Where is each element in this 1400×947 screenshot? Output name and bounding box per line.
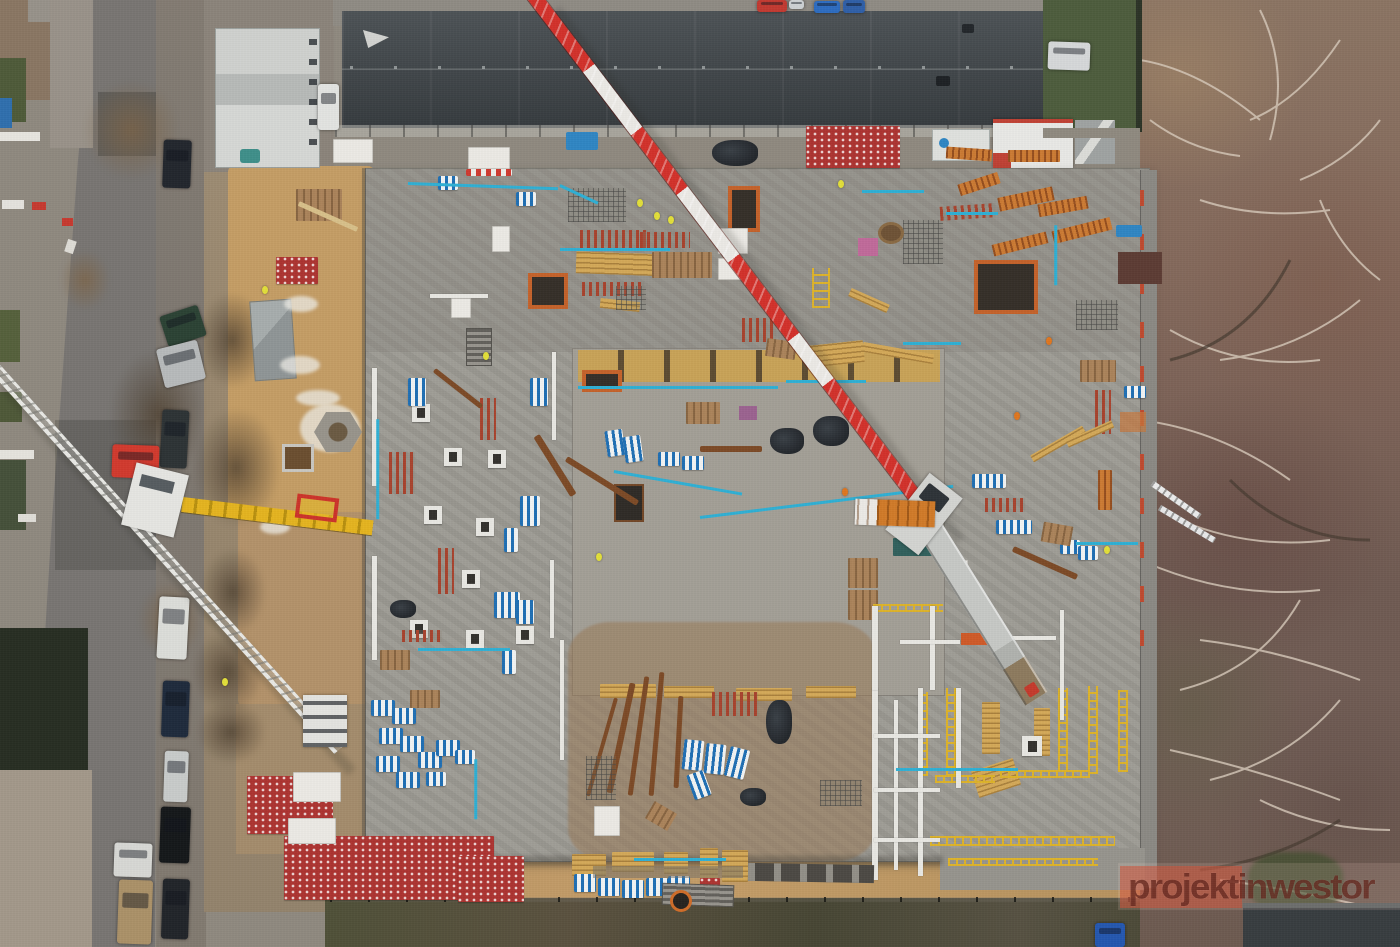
rebar-mesh	[616, 286, 646, 310]
concrete-block	[424, 506, 442, 524]
insulation-pack	[504, 528, 518, 552]
parked-car-navy	[161, 681, 190, 738]
brick-pack	[806, 126, 900, 168]
insulation-pack	[972, 474, 1006, 488]
scaffold-frame	[1088, 686, 1098, 774]
insulation-pack-white	[451, 298, 471, 318]
ground-patch	[1043, 128, 1140, 138]
insulation-pack	[396, 772, 420, 788]
concrete-block	[462, 570, 480, 588]
formwork-clamps	[1140, 176, 1144, 646]
concrete-mixer	[670, 890, 692, 912]
rebar-mesh	[1076, 300, 1118, 330]
car-blue	[1095, 923, 1125, 947]
ground-patch	[1120, 412, 1146, 432]
worker-hivis	[838, 180, 844, 188]
ground-patch	[858, 238, 878, 256]
ground-patch	[0, 770, 92, 947]
tree-branches-texture	[1140, 0, 1400, 947]
insulation-pack-white	[468, 147, 510, 169]
tarp-pile	[770, 428, 804, 454]
wall-segment	[918, 688, 923, 876]
insulation-pack	[455, 750, 475, 764]
worker-hivis	[483, 352, 489, 360]
brick-pack	[458, 856, 524, 902]
insulation-pack	[516, 192, 536, 206]
bare-trees-area	[1140, 0, 1400, 947]
wall-segment	[894, 700, 898, 870]
insulation-pack	[682, 456, 704, 470]
insulation-pack	[681, 739, 704, 771]
service-pipe-line	[418, 648, 510, 651]
rebar-rack	[985, 498, 1025, 512]
wall-segment	[874, 788, 940, 792]
slab-extension	[940, 848, 1145, 890]
rebar-rack	[389, 452, 415, 494]
insulation-pack	[426, 772, 446, 786]
parked-car-dark	[161, 879, 190, 940]
scaffold-frame	[935, 775, 995, 783]
ground-patch	[0, 450, 34, 459]
insulation-pack-white	[293, 772, 341, 802]
parked-car-red	[757, 0, 787, 12]
rebar-bundle	[700, 446, 762, 452]
wall-segment	[874, 838, 940, 842]
wood-pallet	[652, 252, 712, 278]
service-pipe-line	[896, 768, 1018, 771]
pickup-truck	[1048, 41, 1091, 70]
concrete-block	[466, 630, 484, 648]
service-pipe-line	[475, 759, 478, 819]
insulation-pack	[530, 378, 548, 406]
parked-car-black	[159, 806, 191, 863]
ground-patch	[0, 628, 88, 770]
insulation-pack	[392, 708, 416, 724]
wall-segment	[552, 352, 556, 440]
concrete-block	[444, 448, 462, 466]
ground-patch	[0, 310, 20, 362]
worker-hivis	[1104, 546, 1110, 554]
insulation-pack	[996, 520, 1032, 534]
stair-core	[528, 273, 568, 309]
concrete-block	[488, 450, 506, 468]
insulation-pack	[622, 435, 643, 463]
wall-segment	[872, 688, 878, 880]
worker-hivis	[668, 216, 674, 224]
parked-car-white	[163, 751, 189, 803]
ground-patch	[62, 218, 73, 226]
flatbed-truck-cab	[113, 842, 152, 877]
insulation-pack	[1124, 386, 1146, 398]
insulation-pack	[502, 650, 516, 674]
worker-hivis	[596, 553, 602, 561]
watermark-text: projektinwestor	[1128, 867, 1398, 907]
worker-hivis	[637, 199, 643, 207]
rebar-mesh	[903, 220, 943, 264]
ground-patch	[0, 98, 12, 128]
worker-hivis	[654, 212, 660, 220]
blue-container	[1116, 225, 1142, 237]
tarp-pile	[813, 416, 849, 446]
rebar-rack	[580, 230, 648, 248]
wall-segment	[430, 294, 488, 298]
plaster-patch	[280, 356, 320, 374]
rebar-mesh	[586, 756, 616, 800]
tarp	[240, 149, 260, 163]
rebar-rack	[712, 692, 758, 716]
tarp-pile	[740, 788, 766, 806]
ground-patch	[1136, 0, 1142, 132]
worker-hivis	[222, 678, 228, 686]
worker-hivis	[262, 286, 268, 294]
worker-hivis	[842, 488, 848, 496]
ground-patch	[2, 200, 24, 209]
brick-pack	[276, 257, 318, 284]
ground-patch	[0, 132, 40, 141]
aerial-construction-site-photo: projektinwestor	[0, 0, 1400, 947]
wood-pallet	[410, 690, 440, 708]
worker-hivis	[1014, 412, 1020, 420]
ground-patch	[18, 514, 36, 522]
rebar-rack	[640, 232, 690, 248]
truck-white	[156, 596, 189, 659]
concrete-block	[1022, 736, 1042, 756]
service-pipe-line	[1076, 542, 1138, 545]
parked-suv-dark	[160, 409, 190, 468]
wall-segment	[372, 556, 377, 660]
round-pit	[878, 222, 904, 244]
stair-core	[728, 186, 760, 232]
rebar-rack	[402, 630, 442, 642]
parked-car-blue	[843, 0, 865, 13]
formwork-panel	[1008, 150, 1060, 162]
service-pipe-line	[560, 248, 670, 251]
concrete-block	[412, 404, 430, 422]
wall-segment	[560, 640, 564, 760]
worker-hivis	[1046, 337, 1052, 345]
scaffold-frame	[1000, 770, 1090, 778]
parked-car-dark	[162, 140, 192, 189]
wall-segment	[550, 560, 554, 638]
stair-core	[582, 370, 622, 392]
service-pipe-line	[1055, 225, 1058, 285]
flatbed-trailer	[117, 879, 153, 944]
concrete-block	[516, 626, 534, 644]
wall-segment	[874, 734, 940, 738]
insulation-pack	[376, 756, 400, 772]
concrete-block	[476, 518, 494, 536]
concrete-stairs	[466, 328, 492, 366]
scaffold-frame	[948, 858, 1098, 866]
insulation-pack	[520, 496, 540, 526]
insulation-pack	[658, 452, 680, 466]
timber-stack	[982, 702, 1000, 754]
parked-car-blue	[814, 1, 840, 13]
wall-segment	[930, 606, 935, 690]
bare-tree	[196, 700, 266, 764]
tarp-pile	[390, 600, 416, 618]
service-pipe-line	[946, 212, 998, 215]
wood-pallet	[848, 558, 878, 588]
service-pipe-line	[634, 858, 726, 861]
rebar-rack	[438, 548, 454, 594]
wall-segment	[956, 688, 961, 788]
roof-vent	[962, 24, 974, 33]
insulation-pack-white	[288, 818, 336, 844]
insulation-pack-white	[594, 806, 620, 836]
wood-pallet	[380, 650, 410, 670]
timber-stack	[664, 686, 714, 698]
foundation-pit	[282, 444, 314, 472]
service-pipe-line	[862, 190, 924, 193]
scaffold-frame	[812, 268, 830, 308]
scaffold-frame	[946, 688, 956, 776]
roof-vent	[936, 76, 950, 86]
wall-segment	[1060, 610, 1064, 720]
ground-patch	[593, 866, 743, 878]
ground-patch	[1118, 252, 1162, 284]
bare-tree	[60, 250, 110, 310]
insulation-pack-white	[333, 139, 373, 163]
jib-red-section	[295, 494, 340, 523]
insulation-pack-white	[492, 226, 510, 252]
tarp-pile	[712, 140, 758, 166]
crane-base-unit	[303, 695, 347, 747]
warehouse-roof	[342, 11, 1043, 128]
parked-car-white	[789, 0, 804, 9]
wall-segment	[872, 606, 878, 690]
scaffold-frame	[1118, 690, 1128, 772]
rebar-mesh	[820, 780, 862, 806]
ground-patch	[32, 202, 46, 210]
facade-wall	[748, 863, 874, 883]
timber-stack	[806, 686, 856, 698]
loading-ramp	[1075, 120, 1115, 164]
insulation-pack	[1078, 546, 1098, 560]
insulation-pack	[622, 880, 644, 898]
wood-pallet	[686, 402, 720, 424]
roof-rivets	[350, 66, 1040, 69]
tarp-pile	[766, 700, 792, 744]
slab-shadow	[362, 168, 366, 866]
service-pipe-line	[377, 419, 380, 519]
wood-pallet	[1080, 360, 1116, 382]
safety-barrier	[466, 169, 512, 176]
insulation-pack	[703, 743, 726, 775]
stair-core	[974, 260, 1038, 314]
crane-counterweight	[855, 499, 936, 528]
ground-patch	[739, 406, 757, 420]
insulation-pack	[408, 378, 426, 406]
insulation-pack	[516, 600, 534, 624]
van-white	[318, 84, 339, 130]
service-pipe-line	[578, 386, 778, 389]
insulation-pack	[400, 736, 424, 752]
plaster-patch	[284, 296, 318, 312]
insulation-pack	[598, 878, 620, 896]
blue-container	[566, 132, 598, 150]
site-office-containers	[215, 28, 320, 168]
formwork-panel	[1098, 470, 1112, 510]
scaffold-frame	[930, 836, 1115, 846]
wall-segment	[900, 640, 960, 644]
service-pipe-line	[903, 342, 961, 345]
